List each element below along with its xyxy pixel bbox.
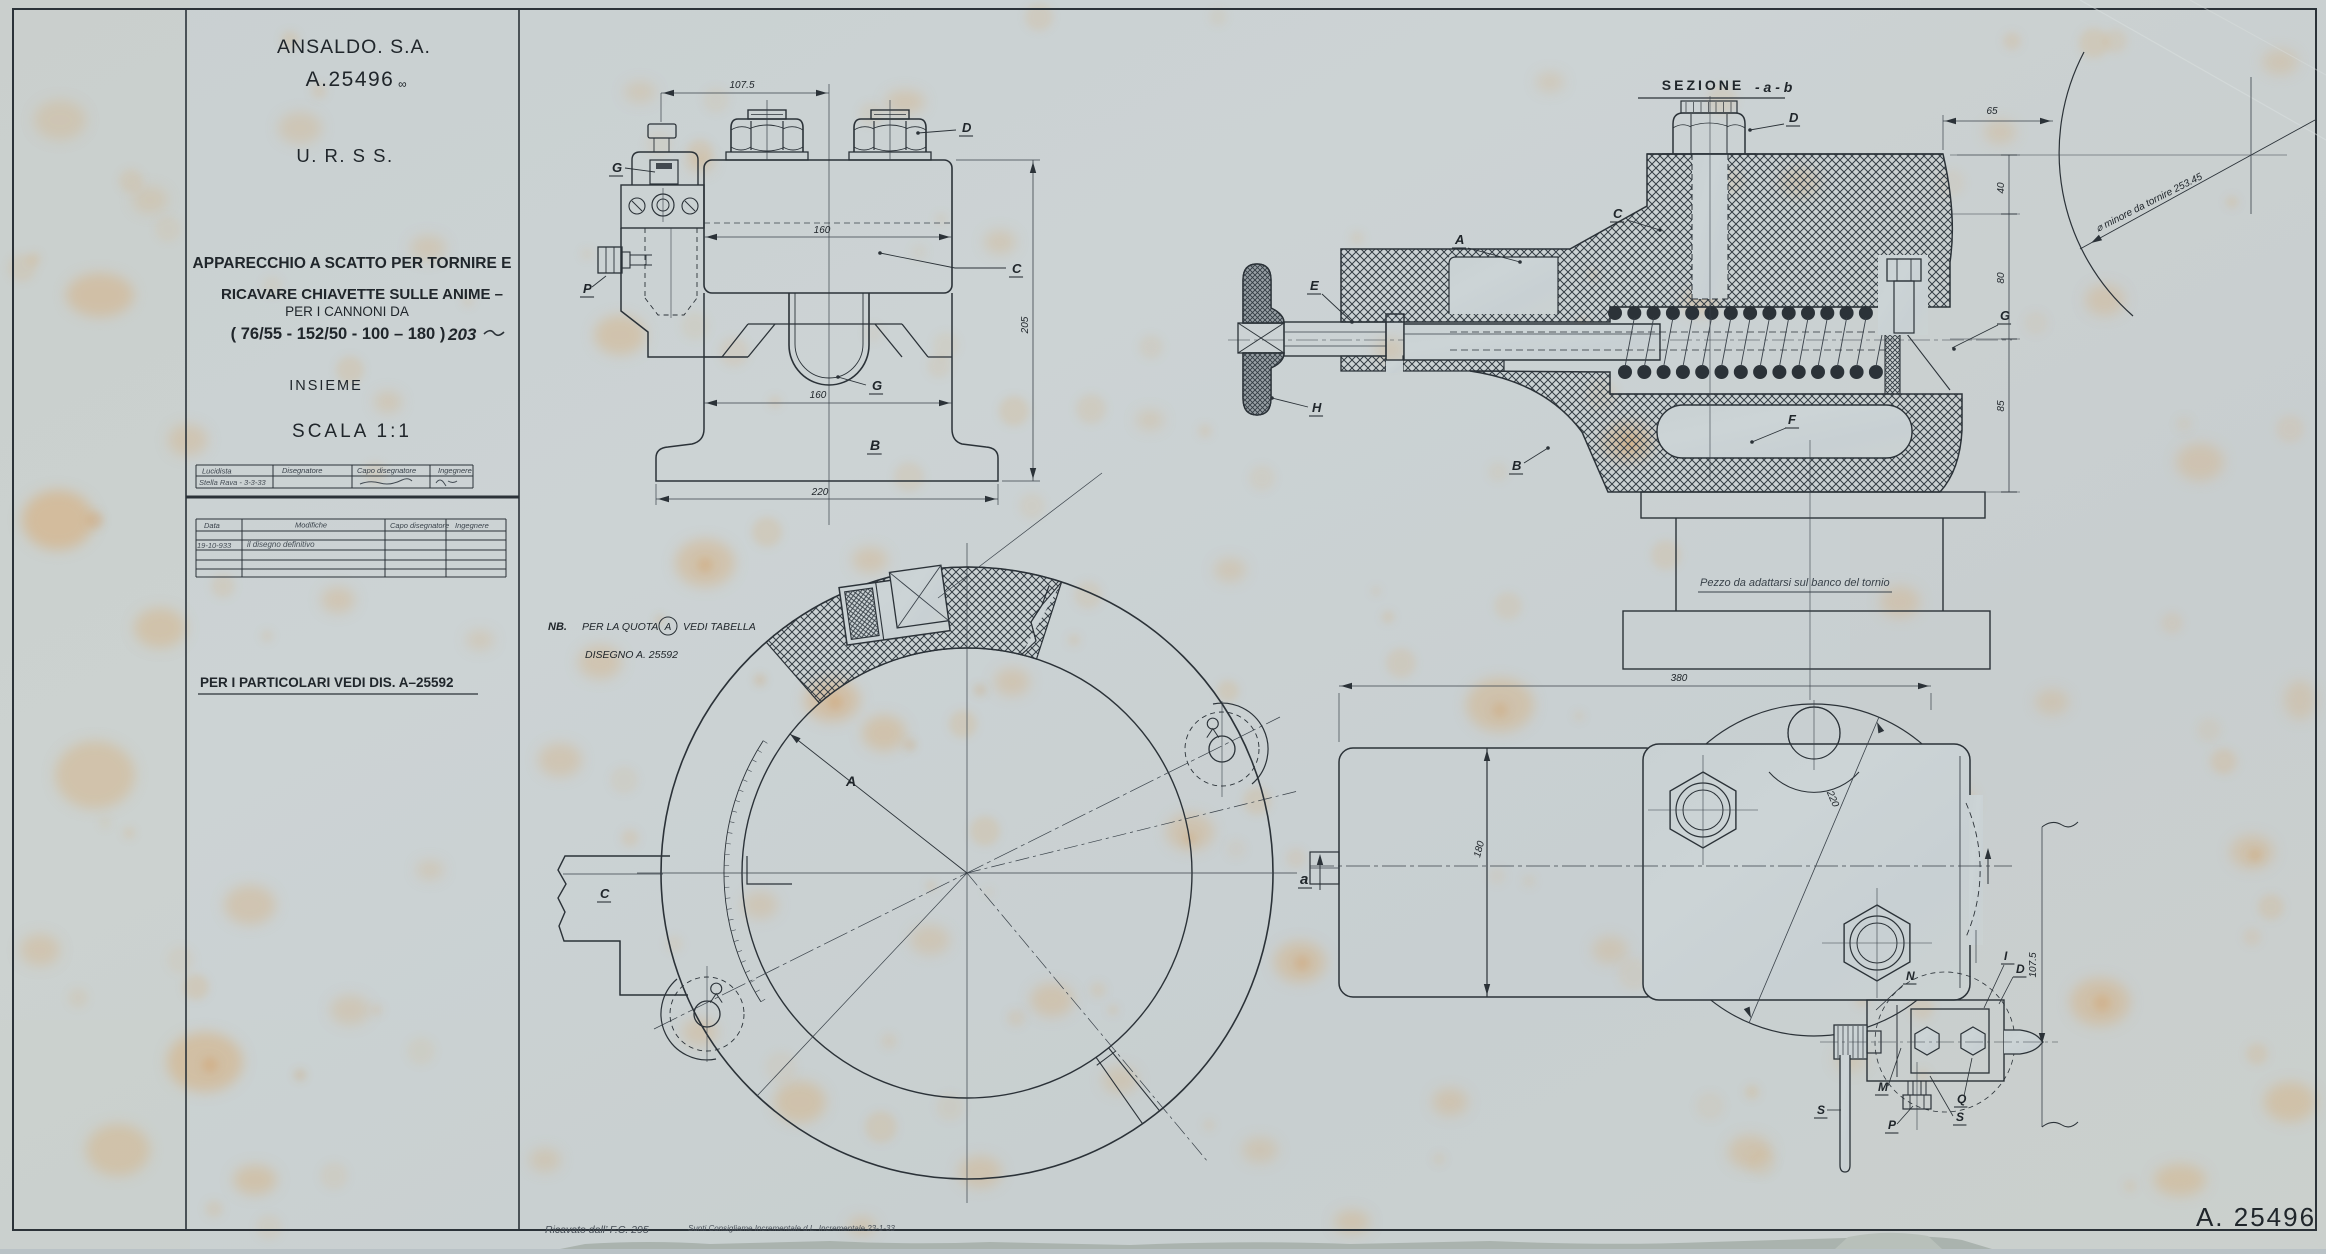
svg-text:19-10-933: 19-10-933 [197, 541, 232, 550]
svg-text:DISEGNO A. 25592: DISEGNO A. 25592 [585, 649, 678, 661]
svg-text:S: S [1817, 1103, 1825, 1117]
svg-text:A: A [1454, 232, 1464, 247]
svg-text:E: E [1310, 278, 1319, 293]
svg-text:65: 65 [1986, 106, 1998, 117]
svg-text:80: 80 [1996, 272, 2007, 284]
svg-text:Lucidista: Lucidista [202, 467, 232, 476]
svg-text:INSIEME: INSIEME [289, 378, 363, 394]
svg-text:C: C [1012, 261, 1022, 276]
svg-text:380: 380 [1671, 673, 1688, 684]
svg-text:85: 85 [1996, 400, 2007, 412]
svg-text:G: G [872, 378, 882, 393]
svg-text:PER I CANNONI DA: PER I CANNONI DA [285, 304, 409, 319]
svg-text:Stella Rava - 3-3-33: Stella Rava - 3-3-33 [199, 478, 267, 487]
svg-text:Ingegnere: Ingegnere [455, 521, 489, 530]
svg-text:APPARECCHIO A SCATTO PER TORNI: APPARECCHIO A SCATTO PER TORNIRE E [193, 255, 512, 272]
svg-text:107.5: 107.5 [729, 80, 754, 91]
svg-text:203: 203 [447, 325, 477, 344]
svg-text:A: A [664, 622, 672, 633]
svg-text:D: D [962, 120, 972, 135]
svg-text:Pezzo da adattarsi sul banco: Pezzo da adattarsi sul banco del tornio [1700, 577, 1890, 589]
svg-text:C: C [1613, 206, 1623, 221]
svg-text:ANSALDO. S.A.: ANSALDO. S.A. [277, 36, 431, 58]
svg-text:40: 40 [1996, 182, 2007, 194]
svg-text:Ricavato dall’ F.C. 295: Ricavato dall’ F.C. 295 [545, 1224, 649, 1236]
svg-text:C: C [600, 886, 610, 901]
svg-text:SEZIONE: SEZIONE [1662, 77, 1744, 93]
svg-text:RICAVARE CHIAVETTE SULLE ANIME: RICAVARE CHIAVETTE SULLE ANIME – [221, 286, 503, 303]
svg-text:a: a [1300, 871, 1308, 888]
svg-text:N: N [1906, 969, 1915, 983]
svg-text:G: G [612, 160, 622, 175]
svg-text:U. R. S S.: U. R. S S. [296, 145, 393, 166]
svg-text:P: P [583, 281, 592, 296]
svg-text:B: B [1512, 458, 1521, 473]
svg-text:107.5: 107.5 [2028, 952, 2039, 977]
svg-text:S: S [1956, 1110, 1964, 1124]
svg-text:Modifiche: Modifiche [295, 521, 327, 530]
svg-text:PER I PARTICOLARI VEDI DIS. A: PER I PARTICOLARI VEDI DIS. A–25592 [200, 675, 454, 690]
svg-text:D: D [2016, 962, 2025, 976]
svg-text:H: H [1312, 400, 1322, 415]
svg-text:B: B [870, 437, 880, 453]
svg-text:Capo disegnatore: Capo disegnatore [357, 466, 416, 475]
svg-text:∞: ∞ [398, 77, 407, 91]
svg-text:205: 205 [1020, 316, 1031, 334]
svg-text:220: 220 [811, 487, 829, 498]
svg-text:A: A [845, 773, 856, 789]
svg-text:Sunti Consigliame Incremental: Sunti Consigliame Incrementale d.L. Incr… [688, 1224, 895, 1233]
svg-text:Data: Data [204, 521, 220, 530]
svg-text:il disegno definitivo: il disegno definitivo [247, 540, 315, 549]
svg-text:160: 160 [814, 225, 831, 236]
svg-text:( 76/55 - 152/50 - 100 – 18: ( 76/55 - 152/50 - 100 – 180 ) [231, 325, 446, 343]
svg-text:A.25496: A.25496 [306, 68, 395, 91]
svg-text:- a - b: - a - b [1755, 79, 1793, 95]
svg-text:Disegnatore: Disegnatore [282, 466, 322, 475]
svg-text:D: D [1789, 110, 1799, 125]
svg-text:Capo disegnatore: Capo disegnatore [390, 521, 449, 530]
svg-text:A. 25496: A. 25496 [2196, 1202, 2316, 1232]
svg-text:Ingegnere: Ingegnere [438, 466, 472, 475]
svg-text:VEDI TABELLA: VEDI TABELLA [683, 621, 756, 633]
svg-text:Q: Q [1957, 1092, 1967, 1106]
svg-text:P: P [1888, 1118, 1897, 1132]
svg-text:NB.: NB. [548, 621, 567, 633]
svg-text:PЕR LA QUOTA: PЕR LA QUOTA [582, 621, 658, 633]
svg-text:SCALA 1:1: SCALA 1:1 [292, 421, 412, 442]
svg-text:F: F [1788, 412, 1797, 427]
svg-text:160: 160 [810, 390, 827, 401]
svg-text:M: M [1878, 1080, 1889, 1094]
